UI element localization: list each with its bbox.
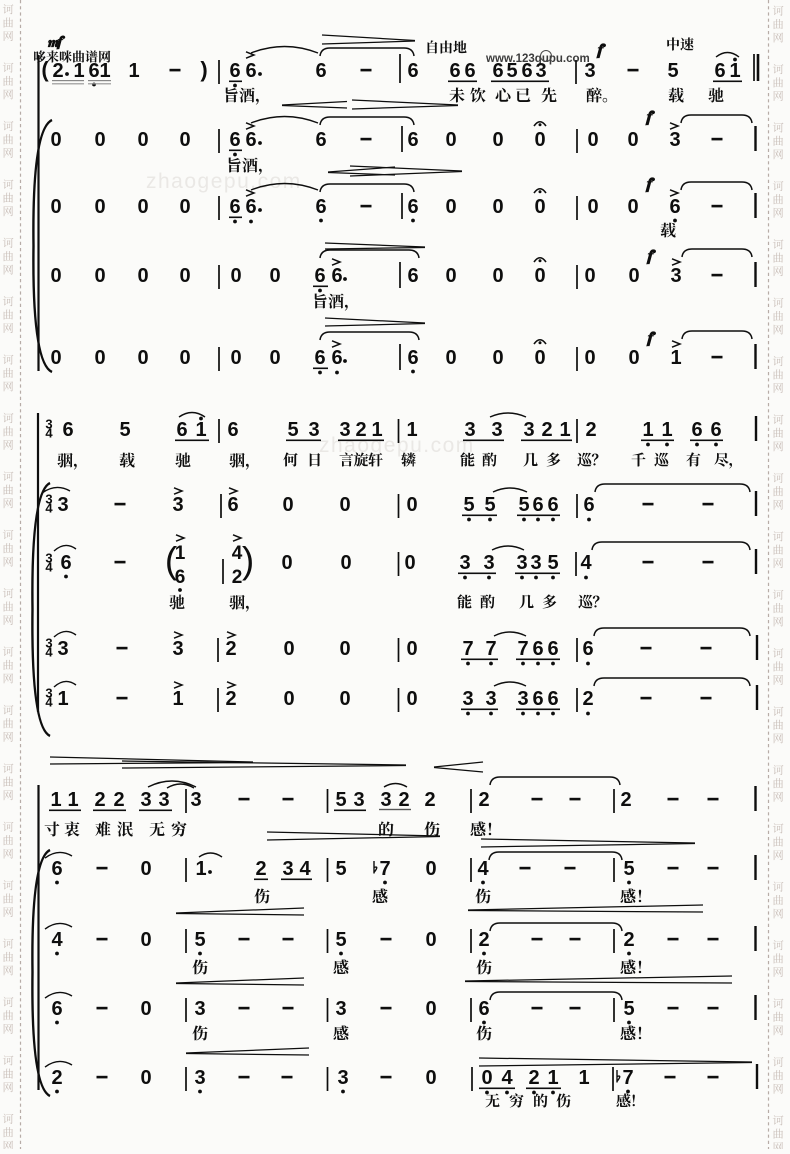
svg-text:0: 0	[94, 196, 105, 218]
svg-text:0: 0	[481, 1067, 492, 1089]
svg-text:3: 3	[57, 494, 68, 516]
svg-text:2: 2	[52, 60, 63, 82]
svg-text:6: 6	[547, 494, 558, 516]
svg-text:0: 0	[627, 129, 638, 151]
svg-text:5: 5	[194, 929, 205, 951]
svg-text:6: 6	[582, 638, 593, 660]
svg-text:5: 5	[463, 494, 474, 516]
svg-text:7: 7	[462, 638, 473, 660]
svg-text:1: 1	[57, 688, 68, 710]
svg-text:1: 1	[559, 419, 570, 441]
svg-text:6: 6	[521, 60, 532, 82]
svg-text:7: 7	[485, 638, 496, 660]
svg-text:0: 0	[425, 929, 436, 951]
svg-text:6: 6	[691, 419, 702, 441]
svg-text:0: 0	[339, 494, 350, 516]
svg-text:3: 3	[308, 419, 319, 441]
svg-text:6: 6	[175, 567, 186, 588]
svg-text:6: 6	[407, 60, 418, 82]
svg-text:5: 5	[547, 552, 558, 574]
svg-text:6: 6	[710, 419, 721, 441]
svg-text:0: 0	[50, 347, 61, 369]
svg-text:5: 5	[623, 858, 634, 880]
svg-text:4: 4	[45, 645, 53, 660]
svg-text:5: 5	[484, 494, 495, 516]
svg-text:6: 6	[227, 494, 238, 516]
svg-text:1: 1	[175, 543, 186, 564]
svg-text:5: 5	[623, 998, 634, 1020]
svg-text:0: 0	[584, 347, 595, 369]
svg-text:7: 7	[379, 858, 390, 880]
svg-text:0: 0	[406, 688, 417, 710]
svg-text:0: 0	[492, 347, 503, 369]
svg-text:4: 4	[299, 858, 311, 880]
svg-text:3: 3	[194, 998, 205, 1020]
svg-text:4: 4	[477, 858, 489, 880]
svg-text:0: 0	[94, 265, 105, 287]
svg-text:0: 0	[140, 1067, 151, 1089]
svg-text:5: 5	[506, 60, 517, 82]
svg-text:3: 3	[530, 552, 541, 574]
svg-text:6: 6	[583, 494, 594, 516]
svg-text:0: 0	[137, 265, 148, 287]
svg-text:6: 6	[331, 265, 342, 287]
svg-text:0: 0	[534, 129, 545, 151]
svg-text:6: 6	[464, 60, 475, 82]
svg-text:2: 2	[582, 688, 593, 710]
svg-text:1: 1	[406, 419, 417, 441]
svg-text:4: 4	[45, 560, 53, 575]
svg-text:2: 2	[225, 688, 236, 710]
svg-text:5: 5	[335, 929, 346, 951]
svg-text:2: 2	[355, 419, 366, 441]
svg-text:2: 2	[585, 419, 596, 441]
svg-text:0: 0	[492, 196, 503, 218]
svg-text:3: 3	[380, 789, 391, 811]
svg-text:1: 1	[661, 419, 672, 441]
svg-text:3: 3	[158, 789, 169, 811]
svg-text:3: 3	[57, 638, 68, 660]
svg-text:6: 6	[51, 858, 62, 880]
svg-text:1: 1	[371, 419, 382, 441]
svg-text:0: 0	[425, 1067, 436, 1089]
svg-text:5: 5	[518, 494, 529, 516]
svg-text:2: 2	[225, 638, 236, 660]
svg-text:4: 4	[580, 552, 592, 574]
svg-text:2: 2	[541, 419, 552, 441]
svg-text:0: 0	[140, 858, 151, 880]
svg-text:0: 0	[628, 347, 639, 369]
svg-text:6: 6	[407, 347, 418, 369]
svg-text:1: 1	[642, 419, 653, 441]
svg-text:1: 1	[99, 60, 110, 82]
svg-text:3: 3	[669, 129, 680, 151]
svg-text:1: 1	[50, 789, 61, 811]
svg-text:6: 6	[449, 60, 460, 82]
svg-text:0: 0	[283, 638, 294, 660]
svg-text:0: 0	[140, 929, 151, 951]
svg-text:0: 0	[406, 638, 417, 660]
svg-text:6: 6	[176, 419, 187, 441]
svg-text:0: 0	[137, 347, 148, 369]
svg-text:2: 2	[528, 1067, 539, 1089]
svg-text:5: 5	[667, 60, 678, 82]
svg-text:6: 6	[547, 688, 558, 710]
svg-text:5: 5	[287, 419, 298, 441]
svg-text:3: 3	[670, 265, 681, 287]
svg-text:3: 3	[190, 789, 201, 811]
svg-text:0: 0	[534, 347, 545, 369]
svg-text:6: 6	[532, 638, 543, 660]
svg-text:6: 6	[229, 60, 240, 82]
svg-text:1: 1	[578, 1067, 589, 1089]
svg-text:0: 0	[281, 552, 292, 574]
svg-text:4: 4	[501, 1067, 513, 1089]
svg-text:(: (	[41, 57, 49, 82]
svg-text:3: 3	[335, 998, 346, 1020]
svg-text:0: 0	[628, 265, 639, 287]
svg-text:1: 1	[73, 60, 84, 82]
svg-text:5: 5	[335, 789, 346, 811]
svg-text:3: 3	[516, 552, 527, 574]
svg-text:3: 3	[485, 688, 496, 710]
svg-text:zhaogepu.com: zhaogepu.com	[146, 170, 302, 193]
svg-text:6: 6	[331, 347, 342, 369]
svg-text:): )	[242, 540, 254, 581]
svg-text:6: 6	[245, 60, 256, 82]
svg-text:4: 4	[45, 501, 53, 516]
svg-text:0: 0	[137, 129, 148, 151]
svg-text:1: 1	[547, 1067, 558, 1089]
svg-text:6: 6	[229, 196, 240, 218]
svg-text:2: 2	[232, 567, 243, 588]
svg-text:3: 3	[459, 552, 470, 574]
svg-text:0: 0	[425, 858, 436, 880]
svg-text:1: 1	[729, 60, 740, 82]
svg-text:4: 4	[45, 426, 53, 441]
svg-text:0: 0	[137, 196, 148, 218]
svg-text:0: 0	[283, 688, 294, 710]
svg-text:6: 6	[51, 998, 62, 1020]
svg-text:6: 6	[315, 60, 326, 82]
svg-text:0: 0	[140, 998, 151, 1020]
svg-text:2: 2	[623, 929, 634, 951]
svg-text:3: 3	[282, 858, 293, 880]
svg-text:3: 3	[172, 494, 183, 516]
svg-text:0: 0	[445, 347, 456, 369]
svg-text:4: 4	[45, 695, 53, 710]
svg-text:0: 0	[50, 196, 61, 218]
svg-text:0: 0	[230, 347, 241, 369]
svg-text:3: 3	[483, 552, 494, 574]
svg-text:3: 3	[172, 638, 183, 660]
svg-text:0: 0	[339, 638, 350, 660]
svg-text:2: 2	[113, 789, 124, 811]
svg-text:3: 3	[462, 688, 473, 710]
svg-text:0: 0	[94, 347, 105, 369]
svg-text:0: 0	[534, 196, 545, 218]
svg-text:0: 0	[445, 265, 456, 287]
svg-text:0: 0	[492, 129, 503, 151]
svg-text:2: 2	[51, 1067, 62, 1089]
svg-text:3: 3	[194, 1067, 205, 1089]
svg-text:0: 0	[587, 196, 598, 218]
svg-text:0: 0	[445, 129, 456, 151]
svg-text:6: 6	[314, 265, 325, 287]
svg-text:6: 6	[229, 129, 240, 151]
svg-text:0: 0	[492, 265, 503, 287]
svg-text:6: 6	[407, 265, 418, 287]
svg-text:0: 0	[269, 265, 280, 287]
svg-text:0: 0	[50, 265, 61, 287]
svg-text:0: 0	[445, 196, 456, 218]
svg-text:0: 0	[94, 129, 105, 151]
svg-text:6: 6	[60, 552, 71, 574]
svg-text:6: 6	[669, 196, 680, 218]
svg-text:3: 3	[337, 1067, 348, 1089]
svg-text:3: 3	[464, 419, 475, 441]
svg-text:3: 3	[517, 688, 528, 710]
svg-text:0: 0	[425, 998, 436, 1020]
svg-text:0: 0	[179, 129, 190, 151]
svg-text:0: 0	[269, 347, 280, 369]
svg-text:2: 2	[478, 929, 489, 951]
svg-text:4: 4	[51, 929, 63, 951]
svg-text:3: 3	[339, 419, 350, 441]
svg-text:6: 6	[532, 688, 543, 710]
svg-text:2: 2	[424, 789, 435, 811]
svg-text:3: 3	[491, 419, 502, 441]
svg-text:6: 6	[227, 419, 238, 441]
svg-text:0: 0	[282, 494, 293, 516]
svg-text:2: 2	[478, 789, 489, 811]
svg-text:0: 0	[179, 347, 190, 369]
svg-text:1: 1	[172, 688, 183, 710]
svg-text:2: 2	[398, 789, 409, 811]
svg-text:1: 1	[670, 347, 681, 369]
svg-text:6: 6	[315, 129, 326, 151]
svg-text:0: 0	[179, 265, 190, 287]
svg-text:): )	[200, 57, 207, 82]
svg-text:5: 5	[335, 858, 346, 880]
svg-text:0: 0	[627, 196, 638, 218]
svg-text:2: 2	[620, 789, 631, 811]
svg-text:1: 1	[195, 858, 206, 880]
svg-text:3: 3	[584, 60, 595, 82]
svg-text:6: 6	[315, 196, 326, 218]
svg-text:1: 1	[128, 60, 139, 82]
svg-text:6: 6	[62, 419, 73, 441]
svg-text:5: 5	[119, 419, 130, 441]
svg-text:0: 0	[584, 265, 595, 287]
svg-text:6: 6	[407, 129, 418, 151]
svg-text:2: 2	[94, 789, 105, 811]
svg-text:7: 7	[622, 1067, 633, 1089]
svg-text:6: 6	[245, 196, 256, 218]
svg-text:0: 0	[406, 494, 417, 516]
svg-text:6: 6	[547, 638, 558, 660]
svg-text:3: 3	[523, 419, 534, 441]
svg-text:6: 6	[407, 196, 418, 218]
svg-text:0: 0	[534, 265, 545, 287]
svg-text:1: 1	[195, 419, 206, 441]
svg-text:6: 6	[245, 129, 256, 151]
svg-text:6: 6	[532, 494, 543, 516]
svg-text:0: 0	[50, 129, 61, 151]
svg-text:6: 6	[478, 998, 489, 1020]
svg-text:3: 3	[535, 60, 546, 82]
svg-text:0: 0	[230, 265, 241, 287]
svg-text:2: 2	[255, 858, 266, 880]
svg-text:6: 6	[88, 60, 99, 82]
svg-text:0: 0	[179, 196, 190, 218]
svg-text:6: 6	[492, 60, 503, 82]
svg-text:0: 0	[340, 552, 351, 574]
svg-text:0: 0	[404, 552, 415, 574]
svg-text:6: 6	[314, 347, 325, 369]
svg-text:3: 3	[140, 789, 151, 811]
svg-text:0: 0	[339, 688, 350, 710]
svg-text:0: 0	[587, 129, 598, 151]
svg-text:1: 1	[67, 789, 78, 811]
svg-text:7: 7	[517, 638, 528, 660]
svg-text:6: 6	[714, 60, 725, 82]
svg-text:3: 3	[353, 789, 364, 811]
